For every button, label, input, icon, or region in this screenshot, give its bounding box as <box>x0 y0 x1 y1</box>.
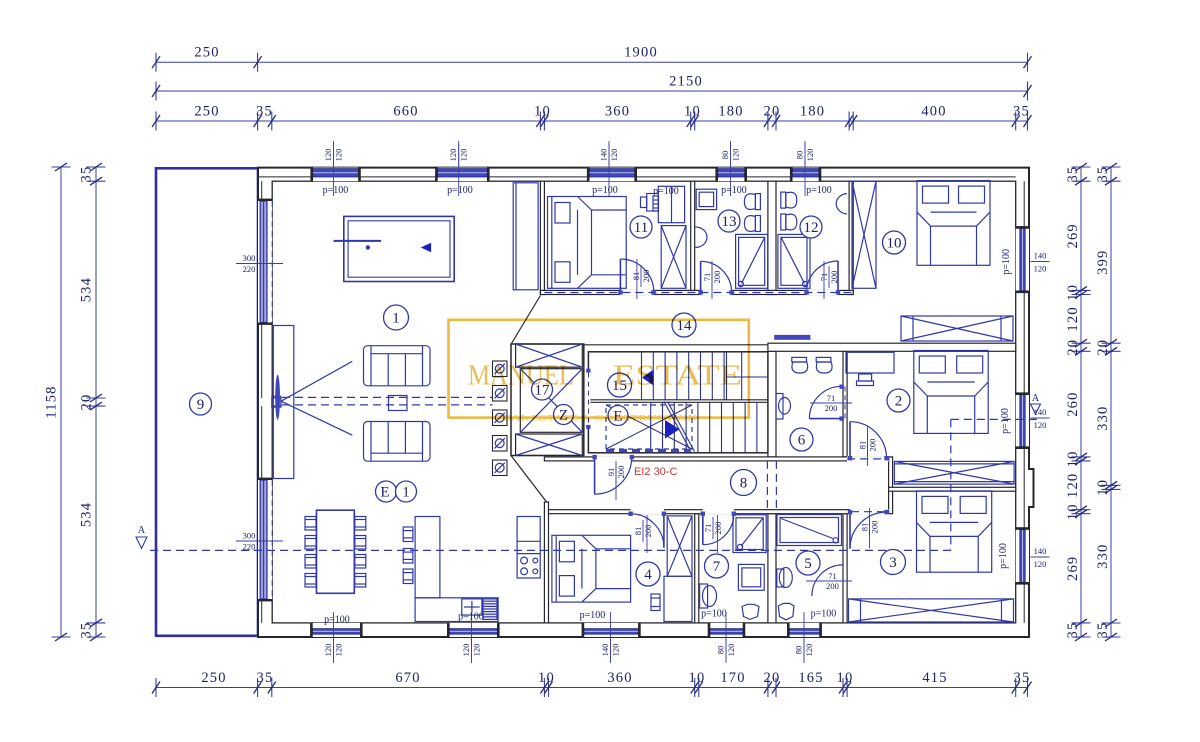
svg-text:220: 220 <box>243 264 256 274</box>
svg-text:p=100: p=100 <box>653 186 679 197</box>
svg-text:80: 80 <box>720 151 730 160</box>
svg-text:534: 534 <box>79 277 95 302</box>
svg-text:269: 269 <box>1065 556 1081 581</box>
svg-text:8: 8 <box>740 476 748 492</box>
svg-text:10: 10 <box>538 670 555 686</box>
svg-text:20: 20 <box>764 670 781 686</box>
svg-text:3: 3 <box>889 555 897 571</box>
svg-text:35: 35 <box>256 104 273 120</box>
svg-text:120: 120 <box>1065 306 1081 331</box>
svg-text:35: 35 <box>1095 622 1111 639</box>
svg-text:300: 300 <box>243 531 256 541</box>
svg-text:71: 71 <box>703 524 713 533</box>
svg-text:120: 120 <box>1034 264 1047 274</box>
svg-text:13: 13 <box>722 214 737 230</box>
svg-text:10: 10 <box>534 104 551 120</box>
svg-text:200: 200 <box>868 439 878 452</box>
svg-text:120: 120 <box>731 149 741 162</box>
svg-text:120: 120 <box>1034 420 1047 430</box>
svg-text:2150: 2150 <box>669 74 703 90</box>
svg-text:20: 20 <box>1095 339 1111 356</box>
svg-text:140: 140 <box>1034 546 1047 556</box>
svg-text:p=100: p=100 <box>1001 249 1012 275</box>
svg-text:10: 10 <box>837 670 854 686</box>
svg-text:10: 10 <box>1095 479 1111 496</box>
svg-text:12: 12 <box>804 220 819 236</box>
svg-text:250: 250 <box>194 104 219 120</box>
svg-text:200: 200 <box>712 271 722 284</box>
svg-text:1158: 1158 <box>44 385 60 418</box>
svg-text:81: 81 <box>631 272 641 281</box>
svg-text:200: 200 <box>616 466 626 479</box>
svg-text:140: 140 <box>1034 407 1047 417</box>
svg-text:p=100: p=100 <box>701 609 727 620</box>
svg-text:7: 7 <box>713 559 721 575</box>
svg-text:200: 200 <box>829 271 839 284</box>
svg-text:660: 660 <box>393 104 418 120</box>
svg-text:p=100: p=100 <box>806 185 832 196</box>
svg-text:120: 120 <box>726 644 736 657</box>
svg-text:250: 250 <box>201 670 226 686</box>
svg-text:10: 10 <box>1065 503 1081 520</box>
svg-text:p=100: p=100 <box>1000 408 1011 434</box>
svg-text:10: 10 <box>1065 284 1081 301</box>
svg-text:360: 360 <box>607 670 632 686</box>
svg-text:399: 399 <box>1095 250 1111 275</box>
svg-text:200: 200 <box>641 270 651 283</box>
svg-text:p=100: p=100 <box>811 609 837 620</box>
svg-text:35: 35 <box>79 166 95 183</box>
svg-text:71: 71 <box>827 393 836 403</box>
svg-text:p=100: p=100 <box>998 543 1009 569</box>
svg-text:120: 120 <box>804 644 814 657</box>
svg-text:1: 1 <box>402 485 410 501</box>
svg-text:415: 415 <box>922 670 947 686</box>
svg-text:120: 120 <box>472 644 482 657</box>
svg-text:534: 534 <box>79 502 95 527</box>
svg-text:120: 120 <box>1065 473 1081 498</box>
svg-text:35: 35 <box>1065 622 1081 639</box>
svg-text:20: 20 <box>1065 339 1081 356</box>
svg-text:140: 140 <box>600 644 610 657</box>
svg-text:140: 140 <box>1034 251 1047 261</box>
svg-text:300: 300 <box>243 253 256 263</box>
svg-text:E: E <box>380 485 389 501</box>
svg-text:MANUEL: MANUEL <box>468 360 574 392</box>
svg-text:200: 200 <box>713 522 723 535</box>
svg-text:260: 260 <box>1065 391 1081 416</box>
svg-text:81: 81 <box>633 527 643 536</box>
svg-text:4: 4 <box>644 567 652 583</box>
svg-text:120: 120 <box>609 149 619 162</box>
svg-text:20: 20 <box>79 394 95 411</box>
svg-text:120: 120 <box>334 149 344 162</box>
svg-text:120: 120 <box>448 149 458 162</box>
svg-text:9: 9 <box>197 397 205 413</box>
svg-text:35: 35 <box>1014 670 1031 686</box>
svg-text:180: 180 <box>800 104 825 120</box>
svg-text:120: 120 <box>805 149 815 162</box>
svg-text:35: 35 <box>1095 166 1111 183</box>
svg-text:120: 120 <box>611 644 621 657</box>
svg-text:EI2 30-C: EI2 30-C <box>634 466 677 478</box>
svg-text:80: 80 <box>794 646 804 655</box>
svg-text:330: 330 <box>1095 406 1111 431</box>
svg-text:220: 220 <box>243 542 256 552</box>
svg-text:81: 81 <box>860 523 870 532</box>
svg-text:165: 165 <box>798 670 823 686</box>
svg-text:400: 400 <box>921 104 946 120</box>
svg-text:91: 91 <box>606 468 616 477</box>
svg-text:180: 180 <box>718 104 743 120</box>
svg-text:80: 80 <box>716 646 726 655</box>
svg-text:330: 330 <box>1095 544 1111 569</box>
svg-text:269: 269 <box>1065 223 1081 248</box>
svg-text:6: 6 <box>798 433 806 449</box>
svg-text:REAL ESTATE & CONSTRUCTION: REAL ESTATE & CONSTRUCTION <box>494 414 697 423</box>
svg-text:1900: 1900 <box>624 45 658 61</box>
svg-text:120: 120 <box>461 644 471 657</box>
svg-text:10: 10 <box>689 670 706 686</box>
svg-text:250: 250 <box>194 45 219 61</box>
svg-text:p=100: p=100 <box>721 185 747 196</box>
svg-text:10: 10 <box>684 104 701 120</box>
svg-text:1: 1 <box>392 311 400 327</box>
svg-text:81: 81 <box>858 441 868 450</box>
svg-text:200: 200 <box>826 581 839 591</box>
svg-text:ESTATE: ESTATE <box>613 360 742 392</box>
svg-text:11: 11 <box>634 220 648 236</box>
svg-text:2: 2 <box>895 394 903 410</box>
svg-text:120: 120 <box>334 644 344 657</box>
svg-text:360: 360 <box>605 104 630 120</box>
svg-text:A: A <box>138 525 146 536</box>
svg-text:p=100: p=100 <box>447 185 473 196</box>
svg-text:35: 35 <box>1013 104 1030 120</box>
svg-text:20: 20 <box>764 104 781 120</box>
svg-text:p=100: p=100 <box>458 612 484 623</box>
svg-text:10: 10 <box>887 236 902 252</box>
svg-text:120: 120 <box>459 149 469 162</box>
svg-text:35: 35 <box>79 622 95 639</box>
svg-text:p=100: p=100 <box>324 615 350 626</box>
svg-text:p=100: p=100 <box>592 185 618 196</box>
svg-text:200: 200 <box>643 525 653 538</box>
svg-text:120: 120 <box>323 149 333 162</box>
svg-text:670: 670 <box>395 670 420 686</box>
svg-text:A: A <box>1032 393 1040 404</box>
svg-text:200: 200 <box>825 403 838 413</box>
svg-text:35: 35 <box>1065 166 1081 183</box>
svg-text:10: 10 <box>1065 450 1081 467</box>
svg-text:80: 80 <box>795 151 805 160</box>
svg-text:140: 140 <box>599 149 609 162</box>
svg-text:120: 120 <box>1034 559 1047 569</box>
svg-text:71: 71 <box>828 571 837 581</box>
svg-text:p=100: p=100 <box>580 610 606 621</box>
svg-text:5: 5 <box>804 556 812 572</box>
svg-text:170: 170 <box>720 670 745 686</box>
svg-text:71: 71 <box>702 273 712 282</box>
svg-text:p=100: p=100 <box>323 185 349 196</box>
svg-text:120: 120 <box>323 644 333 657</box>
svg-text:200: 200 <box>870 521 880 534</box>
svg-text:35: 35 <box>257 670 274 686</box>
